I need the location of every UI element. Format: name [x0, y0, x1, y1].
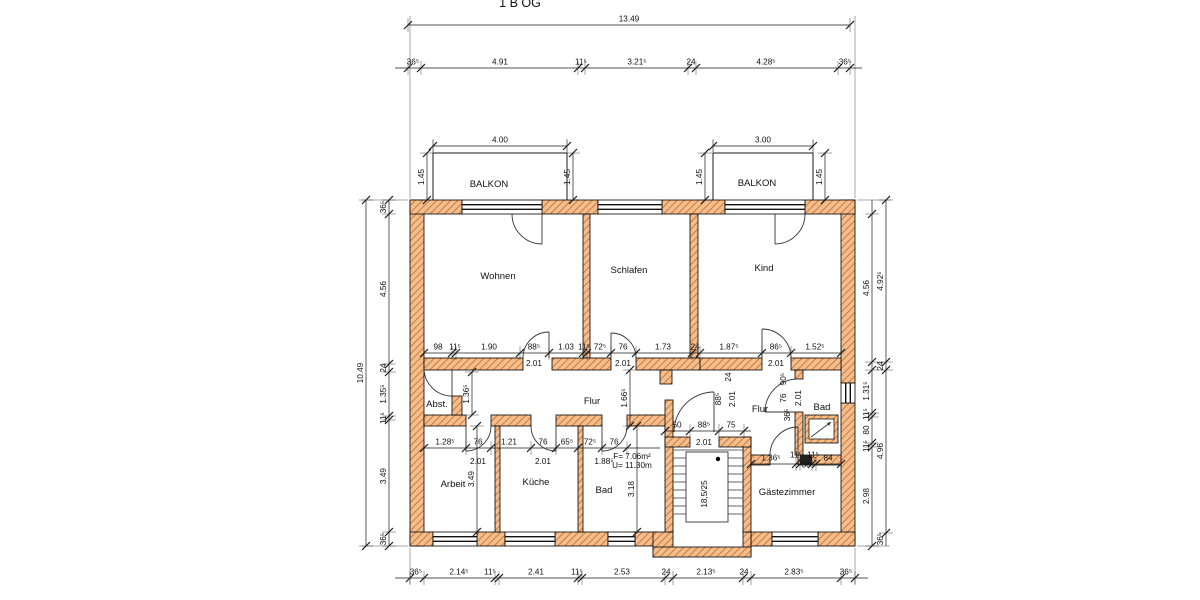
dim-label: 2.01 — [526, 359, 542, 368]
dimension-chains: 13.4936⁵4.9111⁵3.21⁵244.28⁵36⁵4.003.0036… — [356, 15, 893, 586]
dim-label: 11⁵ — [571, 568, 583, 577]
stair-walkline-start — [716, 457, 720, 461]
dim-label: 1.87⁵ — [719, 343, 738, 352]
dim-label: 1.36⁵ — [462, 384, 471, 403]
dim-label: 1.03 — [558, 343, 574, 352]
dim-label: 36⁵ — [876, 533, 885, 546]
dim-label: 72⁵ — [594, 343, 607, 352]
dim-label: 11⁵ — [862, 440, 871, 452]
dim-label: 90⁵ — [779, 373, 788, 386]
wall-wohnen-schlafen — [583, 214, 590, 358]
dim-label: 1.21 — [501, 438, 517, 447]
door-abst — [424, 368, 452, 396]
room-label-bad: Bad — [814, 402, 831, 413]
dim-chain: 36⁵4.9111⁵3.21⁵244.28⁵36⁵ — [395, 58, 862, 76]
dim-label: 2.53 — [614, 568, 630, 577]
dim-label: 18,5/25 — [700, 480, 709, 508]
room-label-balkon: BALKON — [738, 178, 777, 189]
room-labels: BALKONBALKONWohnenSchlafenKindAbst.FlurF… — [426, 178, 830, 498]
room-label-kind: Kind — [754, 263, 773, 274]
dim-label: 36⁵ — [783, 409, 792, 422]
dim-chain: 1.45 — [815, 149, 832, 204]
dim-label: 1.45 — [417, 169, 426, 185]
dim-label: 11⁵ — [862, 408, 871, 420]
dim-chain: 4.00 — [429, 136, 571, 154]
dim-label: 4.28⁵ — [756, 58, 775, 67]
dim-label: 84 — [823, 454, 833, 463]
dim-label: 36⁵ — [839, 58, 852, 67]
dim-label: 24 — [686, 58, 696, 67]
window-arbeit — [433, 532, 477, 546]
wall-schlafen-kind — [690, 214, 698, 358]
dim-label: 1.45 — [563, 169, 572, 185]
dim-label: 11⁵ — [449, 343, 461, 352]
dim-chain: 3.00 — [709, 136, 817, 154]
dim-chain: 1.45 — [417, 149, 434, 204]
dim-label: 1.52⁵ — [805, 343, 824, 352]
dim-label: 2.01 — [728, 391, 737, 407]
dim-label: 76 — [473, 438, 483, 447]
dim-label: 4.91 — [492, 58, 508, 67]
dim-label: 24 — [876, 361, 885, 371]
dim-label: 1.88⁵ — [594, 457, 613, 466]
door-balcony-wohnen — [512, 214, 542, 244]
dim-label: 3.49 — [379, 468, 388, 484]
dim-label: 76 — [538, 438, 548, 447]
dim-label: 36⁵ — [407, 58, 420, 67]
dim-label: 50 — [672, 421, 682, 430]
door-balcony-kind — [775, 214, 805, 244]
dim-label: 75 — [726, 421, 736, 430]
door-arcs — [424, 214, 805, 455]
dim-label: 3.00 — [755, 136, 771, 145]
dim-chain: 3.18 — [627, 422, 644, 536]
dim-chain: 1.36⁵11⁵3611⁵84 — [747, 451, 845, 472]
dim-label: 11⁵ — [578, 343, 590, 352]
dim-chain: 4.561.31⁵11⁵8011⁵2.98 — [862, 200, 879, 550]
dim-label: 72⁵ — [584, 438, 597, 447]
dim-label: F= 7.06m² — [613, 452, 651, 461]
floor-title: 1 B OG — [499, 0, 541, 10]
extension-lines — [362, 16, 890, 584]
dim-label: 1.45 — [815, 169, 824, 185]
wall-abst — [452, 396, 462, 415]
dim-chain: 1.45 — [563, 149, 580, 204]
dim-label: 24 — [379, 363, 388, 373]
dim-label: 98 — [433, 343, 443, 352]
room-label-flur: Flur — [752, 404, 768, 415]
stair-bay-bottom — [653, 547, 751, 557]
dim-label: 11⁵ — [575, 58, 587, 67]
dim-label: 1.31⁵ — [862, 381, 871, 400]
dim-label: 3.18 — [627, 481, 636, 497]
dim-label: 88⁵ — [698, 421, 711, 430]
dim-label: 2.14⁵ — [449, 568, 468, 577]
dim-chain: 4.92⁵244.9636⁵ — [876, 196, 893, 546]
dim-label: 1.35⁵ — [379, 384, 388, 403]
dim-label: 1.90 — [481, 343, 497, 352]
dim-label: 76 — [609, 438, 619, 447]
dim-label: 24 — [724, 372, 733, 382]
dim-label: 2.13⁵ — [696, 568, 715, 577]
dim-label: 1.36⁵ — [761, 454, 780, 463]
dim-label: 76 — [618, 343, 628, 352]
dim-label: 11⁵ — [807, 451, 819, 460]
dim-label: 4.96 — [876, 443, 885, 459]
dim-label: 2.01 — [794, 390, 803, 406]
window-gaestezimmer — [772, 532, 818, 546]
dim-label: 76 — [779, 393, 788, 403]
dim-chain: 13.49 — [404, 15, 854, 33]
room-label-arbeit: Arbeit — [441, 479, 466, 490]
dim-label: 3.21⁵ — [627, 58, 646, 67]
dim-label: 36 — [801, 461, 811, 470]
dim-label: U= 11.30m — [612, 461, 652, 470]
dim-chain: 10.49 — [356, 196, 373, 550]
dim-label: 13.49 — [619, 15, 640, 24]
floorplan-page: { "meta": { "floor_label": "1 B OG" }, "… — [0, 0, 1200, 600]
dim-label: 80 — [862, 425, 871, 435]
room-label-bad: Bad — [596, 485, 613, 496]
room-label-wohnen: Wohnen — [480, 271, 515, 282]
dim-label: 4.56 — [379, 281, 388, 297]
window-kind — [725, 200, 805, 214]
dim-label: 2.98 — [862, 488, 871, 504]
floor-plan-drawing: 1 B OG — [0, 0, 1200, 600]
balcony-left-outline — [433, 153, 567, 200]
dim-label: 2.01 — [696, 438, 712, 447]
dim-label: 4.92⁵ — [876, 271, 885, 290]
dim-label: 1.45 — [695, 169, 704, 185]
room-label-abst: Abst. — [426, 399, 448, 410]
dim-label: 88⁵ — [528, 343, 541, 352]
room-label-schlafen: Schlafen — [611, 265, 648, 276]
dim-label: 86⁵ — [770, 343, 783, 352]
dim-chain: 1.36⁵ — [462, 368, 479, 419]
window-kueche — [505, 532, 555, 546]
dim-label: 24 — [690, 343, 700, 352]
dim-label: 1.66⁵ — [620, 388, 629, 407]
dim-label: 4.56 — [862, 280, 871, 296]
dim-label: 2.01 — [768, 359, 784, 368]
dim-label: 24 — [661, 568, 671, 577]
dim-label: 2.01 — [470, 457, 486, 466]
dim-label: 2.41 — [528, 568, 544, 577]
dim-label: 24 — [739, 568, 749, 577]
room-label-flur: Flur — [584, 396, 600, 407]
dim-label: 10.49 — [356, 362, 365, 383]
dim-chain: 36⁵4.56241.35⁵11⁵3.4936⁵ — [379, 196, 396, 550]
shower-tray — [805, 415, 838, 443]
dim-label: 36⁵ — [410, 568, 423, 577]
dim-label: 4.00 — [492, 136, 508, 145]
dim-label: 1.28⁵ — [435, 438, 454, 447]
dim-label: 2.01 — [535, 457, 551, 466]
window-schlafen — [598, 200, 662, 214]
window-bad — [608, 532, 635, 546]
window-wohnen — [462, 200, 542, 214]
dim-label: 11⁵ — [379, 412, 388, 424]
dim-label: 36⁵ — [379, 533, 388, 546]
dim-chain: 5088⁵75 — [661, 421, 751, 439]
window-bad-right — [841, 383, 855, 403]
room-label-balkon: BALKON — [470, 179, 509, 190]
dim-label: 65⁵ — [561, 438, 574, 447]
dim-label: 2.01 — [615, 359, 631, 368]
wall-right-upper — [841, 200, 855, 383]
dim-label: 11⁵ — [484, 568, 496, 577]
dim-label: 36⁵ — [379, 201, 388, 214]
dim-chain: 36⁵2.14⁵11⁵2.4111⁵2.53242.13⁵242.83⁵36⁵ — [395, 568, 868, 586]
dim-label: 88⁵ — [714, 393, 723, 406]
balcony-right-outline — [713, 153, 813, 200]
dim-label: 3.49 — [467, 471, 476, 487]
room-label-gstezimmer: Gästezimmer — [759, 487, 815, 498]
dim-chain: 1.45 — [695, 149, 712, 204]
dim-label: 11⁵ — [790, 451, 802, 460]
dim-label: 1.73 — [655, 343, 671, 352]
dim-label: 2.83⁵ — [784, 568, 803, 577]
wall-left — [410, 200, 424, 546]
dim-label: 36⁵ — [840, 568, 853, 577]
room-label-kche: Küche — [523, 477, 550, 488]
wall-right-lower — [841, 403, 855, 546]
